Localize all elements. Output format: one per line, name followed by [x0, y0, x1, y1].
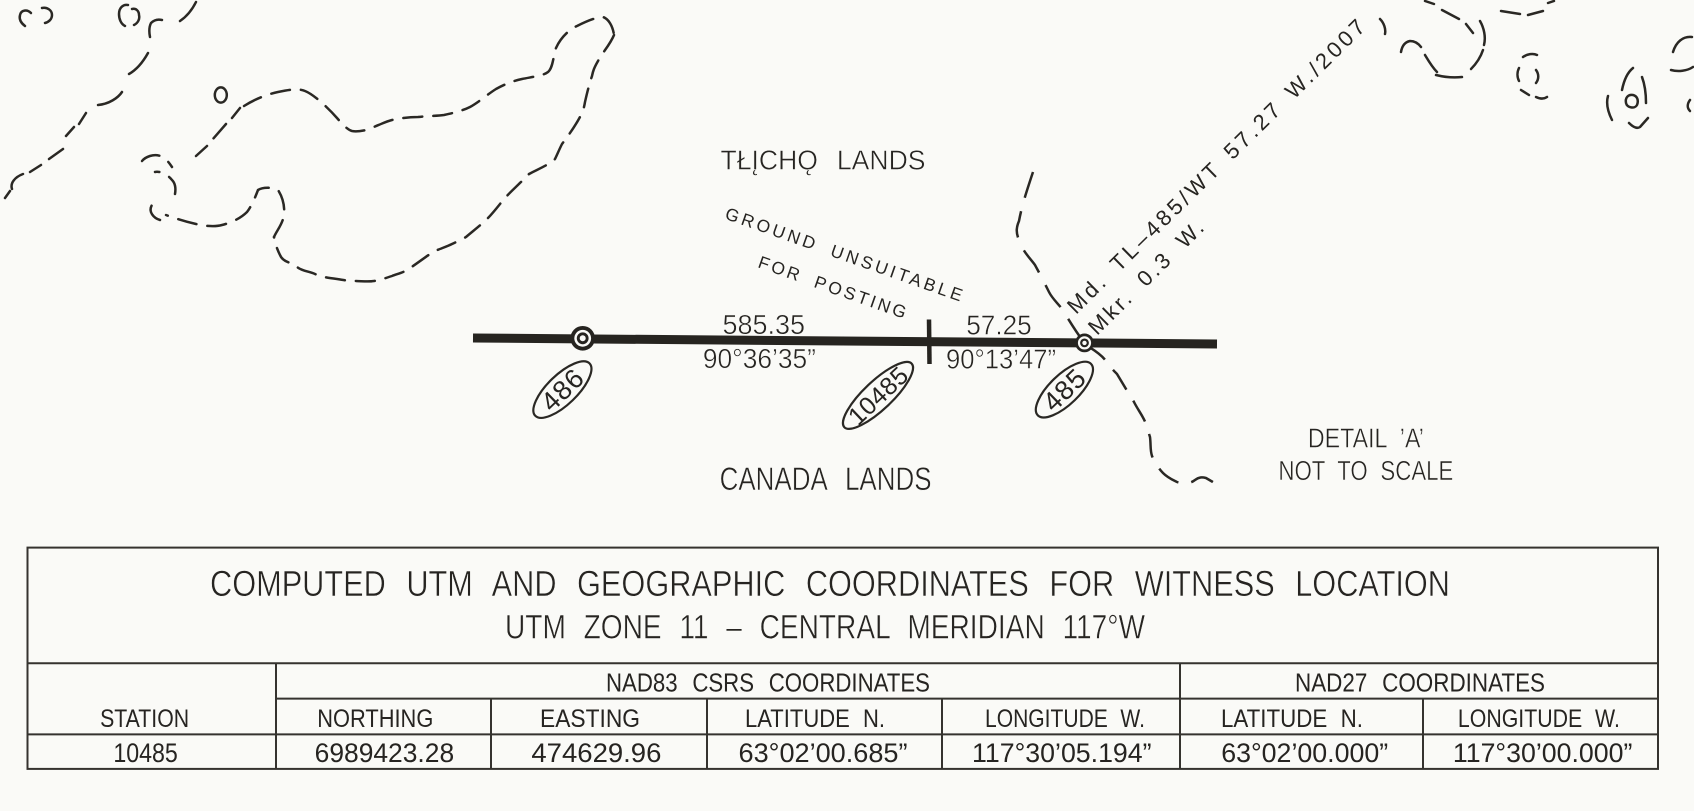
svg-text:63°02’00.000”: 63°02’00.000” [1221, 738, 1388, 768]
svg-text:6989423.28: 6989423.28 [315, 738, 455, 768]
svg-text:LONGITUDE W.: LONGITUDE W. [1458, 705, 1620, 733]
svg-text:CANADA LANDS: CANADA LANDS [720, 461, 932, 497]
svg-text:90°36’35”: 90°36’35” [703, 343, 816, 374]
svg-text:TŁĮCHǪ LANDS: TŁĮCHǪ LANDS [721, 145, 926, 176]
svg-text:90°13’47”: 90°13’47” [946, 344, 1056, 375]
svg-text:DETAIL ’A’: DETAIL ’A’ [1308, 423, 1424, 454]
svg-text:57.25: 57.25 [966, 310, 1032, 341]
svg-text:LONGITUDE W.: LONGITUDE W. [985, 705, 1145, 733]
svg-text:COMPUTED UTM AND GEOGRAPHIC CO: COMPUTED UTM AND GEOGRAPHIC COORDINATES … [210, 563, 1450, 604]
svg-text:585.35: 585.35 [723, 309, 806, 340]
svg-text:LATITUDE N.: LATITUDE N. [1221, 705, 1363, 733]
svg-text:STATION: STATION [100, 705, 189, 733]
svg-text:EASTING: EASTING [540, 705, 640, 733]
svg-text:UTM ZONE 11 – CENTRAL MERIDIAN: UTM ZONE 11 – CENTRAL MERIDIAN 117°W [505, 609, 1145, 647]
svg-text:NOT TO SCALE: NOT TO SCALE [1278, 455, 1453, 486]
svg-text:63°02’00.685”: 63°02’00.685” [739, 738, 908, 768]
svg-text:NORTHING: NORTHING [317, 705, 433, 733]
svg-text:10485: 10485 [113, 738, 178, 768]
svg-text:474629.96: 474629.96 [531, 738, 661, 768]
svg-text:NAD27 COORDINATES: NAD27 COORDINATES [1295, 668, 1545, 698]
svg-text:117°30’05.194”: 117°30’05.194” [972, 738, 1152, 768]
svg-text:NAD83 CSRS COORDINATES: NAD83 CSRS COORDINATES [606, 668, 930, 698]
svg-text:LATITUDE N.: LATITUDE N. [745, 705, 885, 733]
svg-text:117°30’00.000”: 117°30’00.000” [1453, 738, 1633, 768]
